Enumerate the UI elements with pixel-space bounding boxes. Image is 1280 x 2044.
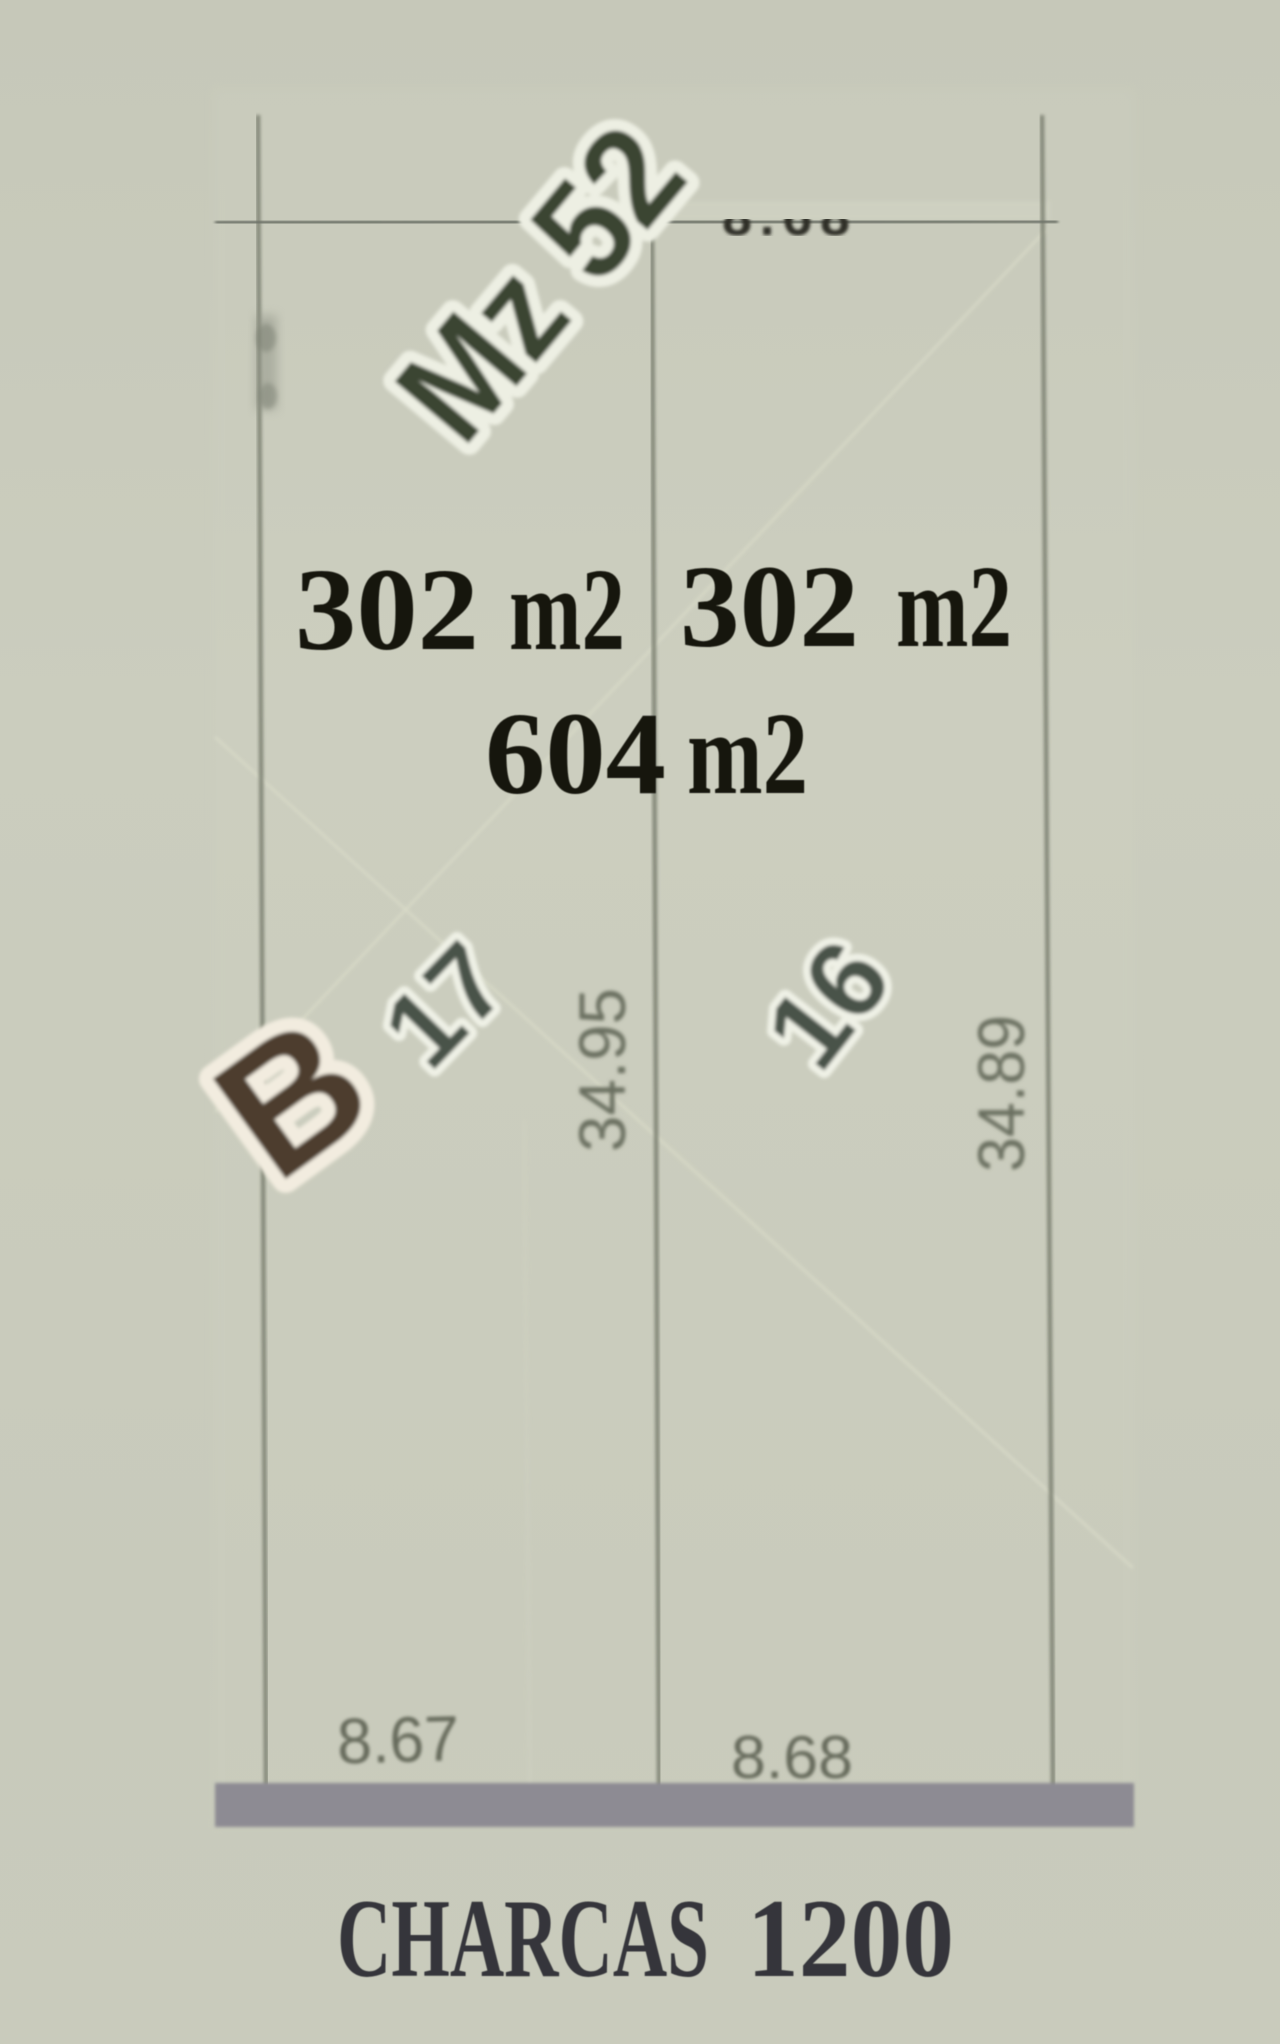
svg-text:34.89: 34.89 xyxy=(964,1015,1038,1172)
svg-text:8.68: 8.68 xyxy=(731,1724,853,1791)
svg-text:302: 302 xyxy=(680,541,859,672)
svg-text:34.95: 34.95 xyxy=(565,988,639,1152)
svg-text:m2: m2 xyxy=(896,541,1012,672)
svg-text:1200: 1200 xyxy=(747,1877,954,2001)
svg-text:8.67: 8.67 xyxy=(336,1702,460,1777)
svg-text:m2: m2 xyxy=(509,544,625,675)
svg-text:302: 302 xyxy=(295,544,479,675)
svg-text:604: 604 xyxy=(485,688,666,819)
svg-text:m2: m2 xyxy=(687,688,808,819)
svg-text:CHARCAS: CHARCAS xyxy=(337,1877,709,2001)
